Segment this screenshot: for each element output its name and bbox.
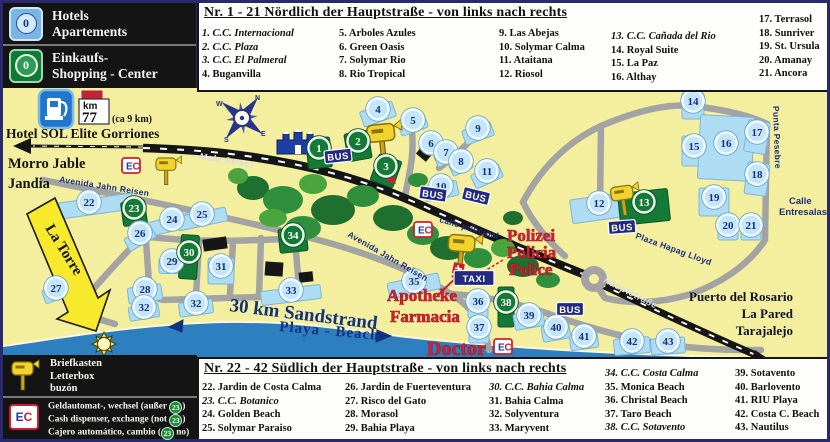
svg-text:9: 9 xyxy=(475,123,481,135)
map-label: (ca 9 km) xyxy=(112,114,152,125)
svg-text:30: 30 xyxy=(184,247,196,259)
list-item: 33. Maryvent xyxy=(489,422,584,436)
svg-text:77: 77 xyxy=(82,110,98,126)
svg-text:42: 42 xyxy=(627,336,639,348)
map-marker-43: 43 xyxy=(656,329,681,354)
map-marker-31: 31 xyxy=(209,254,234,279)
map-marker-16: 16 xyxy=(714,131,739,156)
list-item: 8. Rio Tropical xyxy=(339,68,416,82)
map-marker-39: 39 xyxy=(517,303,542,328)
map-marker-21: 21 xyxy=(739,213,764,238)
list-item: 29. Bahia Playa xyxy=(345,422,471,436)
map-marker-24: 24 xyxy=(160,207,185,232)
svg-text:8: 8 xyxy=(458,156,464,168)
list-column: 26. Jardin de Fuerteventura27. Risco del… xyxy=(345,381,471,435)
svg-text:16: 16 xyxy=(721,138,733,150)
map-marker-30: 30 xyxy=(177,240,202,265)
svg-text:25: 25 xyxy=(197,209,209,221)
legend-row-letterbox: Briefkasten Letterbox buzón xyxy=(3,355,197,396)
map-marker-37: 37 xyxy=(467,315,492,340)
road-number-banner xyxy=(81,90,103,99)
svg-text:BUS: BUS xyxy=(611,222,633,234)
svg-text:6: 6 xyxy=(428,138,434,150)
map-marker-4: 4 xyxy=(366,97,391,122)
list-item: 42. Costa C. Beach xyxy=(735,408,819,422)
svg-text:TAXI: TAXI xyxy=(463,274,486,285)
map-label: Morro Jable xyxy=(8,156,86,172)
svg-text:23: 23 xyxy=(129,203,141,215)
map-marker-9: 9 xyxy=(466,116,491,141)
list-item: 1. C.C. Internacional xyxy=(202,27,294,41)
fuel-station-icon xyxy=(39,90,73,128)
list-item: 32. Solyventura xyxy=(489,408,584,422)
list-item: 23. C.C. Botanico xyxy=(202,395,321,409)
svg-text:19: 19 xyxy=(709,192,721,204)
map-marker-34: 34 xyxy=(281,223,306,248)
map-label: Police xyxy=(509,260,553,279)
hotels-label: Hotels Apartements xyxy=(52,8,127,40)
map-label: Entresalas xyxy=(779,207,827,218)
legend-row-shopping: 0 Einkaufs- Shopping - Center xyxy=(3,44,196,85)
map-marker-38: 38 xyxy=(494,290,519,315)
svg-text:21: 21 xyxy=(746,220,757,232)
list-item: 4. Buganvilla xyxy=(202,68,294,82)
list-item: 16. Althay xyxy=(611,71,716,85)
map-marker-14: 14 xyxy=(681,89,706,114)
legend-services: Briefkasten Letterbox buzón EC Geldautom… xyxy=(3,355,197,439)
list-item: 12. Riosol xyxy=(499,68,585,82)
svg-text:W: W xyxy=(216,101,223,108)
list-item: 26. Jardin de Fuerteventura xyxy=(345,381,471,395)
list-item: 18. Sunriver xyxy=(759,27,820,41)
svg-text:1: 1 xyxy=(316,143,322,155)
svg-text:4: 4 xyxy=(375,104,381,116)
list-column: 9. Las Abejas10. Solymar Calma11. Ataita… xyxy=(499,27,585,81)
map-marker-20: 20 xyxy=(716,213,741,238)
list-column: 39. Sotavento40. Barlovento41. RIU Playa… xyxy=(735,367,819,435)
list-item: 6. Green Oasis xyxy=(339,41,416,55)
list-item: 13. C.C. Cañada del Rio xyxy=(611,30,716,44)
map-marker-42: 42 xyxy=(620,329,645,354)
map-marker-5: 5 xyxy=(401,108,426,133)
svg-text:43: 43 xyxy=(663,336,675,348)
map-marker-17: 17 xyxy=(745,120,770,145)
list-item: 24. Golden Beach xyxy=(202,408,321,422)
legend-row-cash: EC Geldautomat-, wechsel (außer 23)Cash … xyxy=(3,396,197,437)
svg-text:27: 27 xyxy=(51,283,63,295)
hotel-number-badge: 0 xyxy=(16,13,37,34)
list-item: 43. Nautilus xyxy=(735,421,819,435)
map-marker-18: 18 xyxy=(745,162,770,187)
list-item: 21. Ancora xyxy=(759,67,820,81)
ec-cash-icon xyxy=(414,222,432,237)
list-south-of-main-road: Nr. 22 - 42 Südlich der Hauptstraße - vo… xyxy=(197,357,827,439)
list-item: 35. Monica Beach xyxy=(605,381,698,395)
list-item: 25. Solymar Paraiso xyxy=(202,422,321,436)
shopping-label: Einkaufs- Shopping - Center xyxy=(52,50,158,82)
ec-cash-icon: EC xyxy=(9,404,39,430)
list-north-of-main-road: Nr. 1 - 21 Nördlich der Hauptstraße - vo… xyxy=(197,3,827,92)
svg-text:12: 12 xyxy=(594,198,606,210)
map-label: Hotel SOL Elite Gorriones xyxy=(6,126,159,141)
svg-text:33: 33 xyxy=(286,285,298,297)
list-item: 15. La Paz xyxy=(611,57,716,71)
map-marker-27: 27 xyxy=(44,276,69,301)
list-item: 41. RIU Playa xyxy=(735,394,819,408)
map-label: Tarajalejo xyxy=(736,323,793,338)
taxi-sign: TAXI xyxy=(454,271,494,286)
shopping-marker-icon: 0 xyxy=(9,49,43,83)
map-marker-25: 25 xyxy=(190,202,215,227)
svg-text:7: 7 xyxy=(443,147,449,159)
svg-text:37: 37 xyxy=(474,322,486,334)
list-item: 38. C.C. Sotavento xyxy=(605,421,698,435)
legend-accommodation: 0 Hotels Apartements 0 Einkaufs- Shoppin… xyxy=(3,3,196,88)
svg-text:13: 13 xyxy=(639,197,651,209)
except-23-badge: 23 xyxy=(169,401,182,414)
south-list-title: Nr. 22 - 42 Südlich der Hauptstraße - vo… xyxy=(204,361,566,377)
list-item: 2. C.C. Plaza xyxy=(202,41,294,55)
map-label: Farmacia xyxy=(390,307,460,326)
list-item: 17. Terrasol xyxy=(759,13,820,27)
map-marker-32: 32 xyxy=(132,295,157,320)
svg-text:29: 29 xyxy=(167,256,179,268)
svg-text:34: 34 xyxy=(288,230,300,242)
list-column: 13. C.C. Cañada del Rio14. Royal Suite15… xyxy=(611,30,716,84)
list-item: 20. Amanay xyxy=(759,54,820,68)
roundabout xyxy=(581,266,607,292)
list-item: 14. Royal Suite xyxy=(611,44,716,58)
list-item: 9. Las Abejas xyxy=(499,27,585,41)
ec-cash-icon xyxy=(122,158,140,173)
map-label: Puerto del Rosario xyxy=(689,289,793,304)
svg-text:S: S xyxy=(224,137,229,144)
list-item: 22. Jardin de Costa Calma xyxy=(202,381,321,395)
svg-text:26: 26 xyxy=(135,228,147,240)
list-column: 1. C.C. Internacional2. C.C. Plaza3. C.C… xyxy=(202,27,294,81)
shopping-number-badge: 0 xyxy=(15,54,38,77)
list-column: 30. C.C. Bahia Calma31. Bahia Calma32. S… xyxy=(489,381,584,435)
map-marker-22: 22 xyxy=(77,190,102,215)
svg-text:14: 14 xyxy=(688,96,700,108)
cash-legend-line: Cajero automático, cambio (23 no) xyxy=(48,427,189,440)
cash-legend-line: Cash dispenser, exchange (not 23) xyxy=(48,414,189,427)
svg-text:41: 41 xyxy=(579,331,590,343)
sun-icon xyxy=(92,332,116,356)
list-item: 28. Morasol xyxy=(345,408,471,422)
list-item: 11. Ataitana xyxy=(499,54,585,68)
svg-text:39: 39 xyxy=(524,310,536,322)
map-marker-12: 12 xyxy=(587,191,612,216)
list-column: 34. C.C. Costa Calma35. Monica Beach36. … xyxy=(605,367,698,435)
svg-text:38: 38 xyxy=(501,297,513,309)
map-marker-41: 41 xyxy=(572,324,597,349)
list-column: 17. Terrasol18. Sunriver19. St. Ursula20… xyxy=(759,13,820,81)
list-item: 3. C.C. El Palmeral xyxy=(202,54,294,68)
map-marker-33: 33 xyxy=(279,278,304,303)
map-marker-3: 3 xyxy=(374,154,399,179)
svg-text:28: 28 xyxy=(140,284,152,296)
svg-text:E: E xyxy=(261,131,266,138)
list-item: 39. Sotavento xyxy=(735,367,819,381)
svg-text:20: 20 xyxy=(723,220,735,232)
letterbox-icon xyxy=(9,358,41,392)
map-marker-23: 23 xyxy=(122,196,147,221)
map-label: La Pared xyxy=(742,306,794,321)
list-item: 40. Barlovento xyxy=(735,381,819,395)
list-column: 5. Arboles Azules6. Green Oasis7. Solyma… xyxy=(339,27,416,81)
svg-text:32: 32 xyxy=(191,298,203,310)
map-marker-13: 13 xyxy=(632,190,657,215)
svg-text:BUS: BUS xyxy=(559,305,581,316)
map-canvas: E C xyxy=(3,88,827,370)
legend-row-hotels: 0 Hotels Apartements xyxy=(3,3,196,44)
list-item: 19. St. Ursula xyxy=(759,40,820,54)
bus-stop-sign: BUS xyxy=(608,220,636,235)
svg-text:31: 31 xyxy=(216,261,227,273)
list-item: 37. Taro Beach xyxy=(605,408,698,422)
map-marker-32: 32 xyxy=(184,291,209,316)
svg-text:2: 2 xyxy=(355,136,361,148)
except-23-badge: 23 xyxy=(169,414,182,427)
list-item: 30. C.C. Bahia Calma xyxy=(489,381,584,395)
svg-text:15: 15 xyxy=(689,141,701,153)
map-marker-26: 26 xyxy=(128,221,153,246)
list-item: 5. Arboles Azules xyxy=(339,27,416,41)
list-item: 10. Solymar Calma xyxy=(499,41,585,55)
svg-text:BUS: BUS xyxy=(327,151,350,164)
svg-text:3: 3 xyxy=(383,161,389,173)
svg-text:32: 32 xyxy=(139,302,151,314)
map-marker-19: 19 xyxy=(702,185,727,210)
svg-text:36: 36 xyxy=(473,296,485,308)
bus-stop-sign: BUS xyxy=(324,148,352,164)
cash-legend-line: Geldautomat-, wechsel (außer 23) xyxy=(48,401,189,414)
list-item: 36. Christal Beach xyxy=(605,394,698,408)
bus-stop-sign: BUS xyxy=(557,303,584,316)
map-marker-40: 40 xyxy=(544,315,569,340)
list-column: 22. Jardin de Costa Calma23. C.C. Botani… xyxy=(202,381,321,435)
svg-text:17: 17 xyxy=(752,127,764,139)
map-label: Calle xyxy=(789,196,812,207)
map-marker-15: 15 xyxy=(682,134,707,159)
except-23-badge: 23 xyxy=(161,427,174,440)
map-label: Jandia xyxy=(8,176,51,192)
map-marker-8: 8 xyxy=(449,149,474,174)
list-item: 31. Bahia Calma xyxy=(489,395,584,409)
svg-text:22: 22 xyxy=(84,197,96,209)
map-marker-11: 11 xyxy=(475,159,500,184)
north-list-title: Nr. 1 - 21 Nördlich der Hauptstraße - vo… xyxy=(204,5,567,21)
cash-dispenser-label: Geldautomat-, wechsel (außer 23)Cash dis… xyxy=(48,401,189,440)
list-item: 34. C.C. Costa Calma xyxy=(605,367,698,381)
svg-text:5: 5 xyxy=(410,115,416,127)
map-label: Apotheke xyxy=(387,286,457,305)
map-marker-36: 36 xyxy=(466,289,491,314)
svg-text:11: 11 xyxy=(482,166,492,178)
svg-text:18: 18 xyxy=(752,169,764,181)
hotel-marker-icon: 0 xyxy=(9,7,43,41)
svg-text:N: N xyxy=(255,95,260,102)
svg-text:40: 40 xyxy=(551,322,563,334)
list-item: 27. Risco del Gato xyxy=(345,395,471,409)
costa-calma-map-page: E C xyxy=(0,0,830,442)
list-item: 7. Solymar Rio xyxy=(339,54,416,68)
ec-cash-icon xyxy=(494,339,512,354)
letterbox-label: Briefkasten Letterbox buzón xyxy=(50,358,102,396)
svg-text:24: 24 xyxy=(167,214,179,226)
